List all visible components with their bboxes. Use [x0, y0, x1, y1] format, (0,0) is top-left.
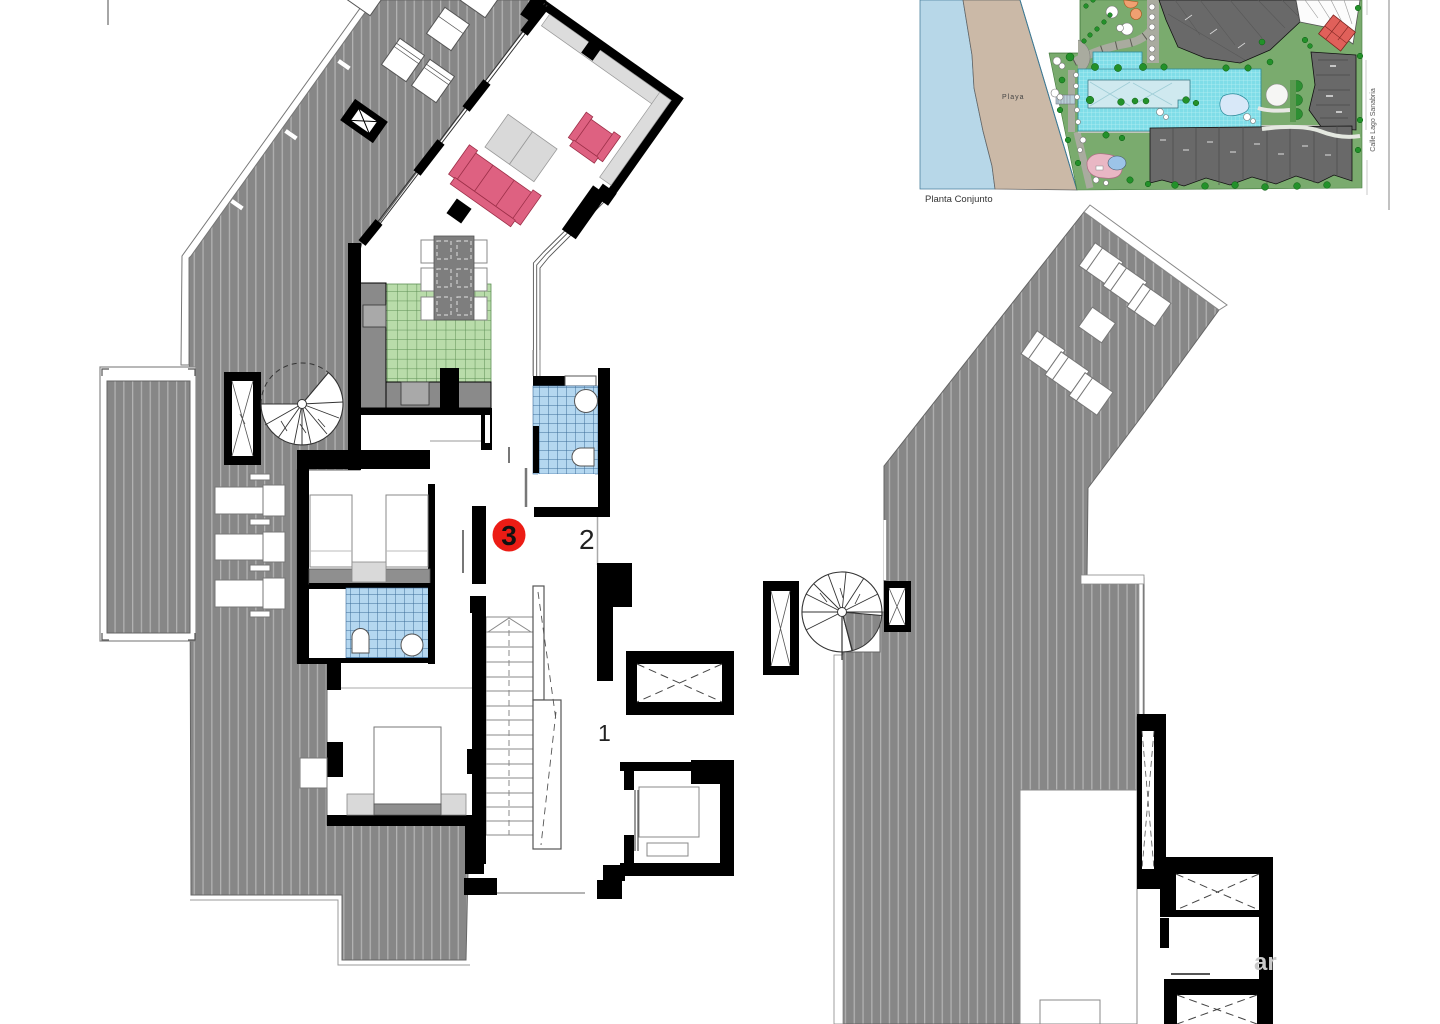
svg-text:Calle Lago Sanabria: Calle Lago Sanabria: [1370, 88, 1377, 152]
svg-text:Playa: Playa: [1002, 94, 1025, 101]
svg-text:3: 3: [501, 520, 517, 551]
svg-text:1: 1: [598, 720, 611, 746]
svg-text:Planta Conjunto: Planta Conjunto: [925, 194, 993, 205]
svg-text:ar: ar: [1254, 949, 1277, 976]
svg-text:2: 2: [579, 524, 595, 555]
